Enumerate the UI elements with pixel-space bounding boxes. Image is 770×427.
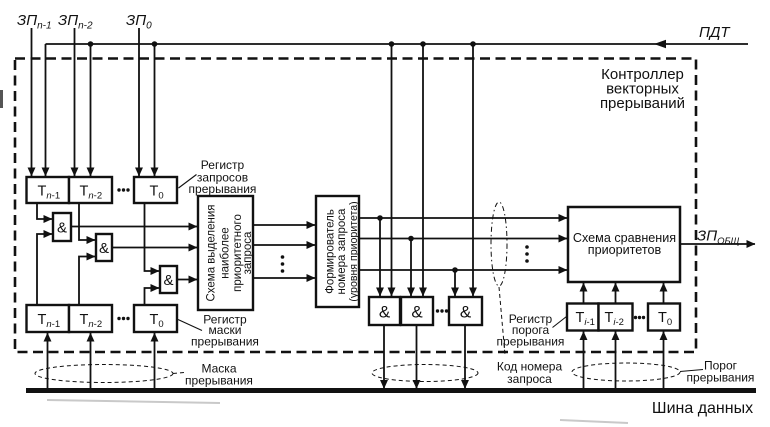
svg-text:запроса: запроса	[242, 231, 254, 274]
svg-text:Шина данных: Шина данных	[652, 400, 753, 417]
svg-text:Формирователь: Формирователь	[325, 209, 337, 294]
svg-text:&: &	[460, 303, 472, 322]
svg-text:запроса: запроса	[507, 372, 552, 386]
svg-text:прерываний: прерываний	[600, 95, 685, 112]
svg-text:(уровня приоритета): (уровня приоритета)	[348, 201, 360, 301]
svg-text:Схема выделения: Схема выделения	[206, 204, 218, 301]
svg-text:&: &	[411, 303, 423, 322]
svg-text:прерывания: прерывания	[687, 371, 755, 385]
svg-text:&: &	[57, 220, 67, 237]
svg-text:&: &	[163, 272, 173, 289]
svg-text:&: &	[379, 303, 391, 322]
svg-text:наиболее: наиболее	[220, 227, 232, 278]
svg-text:прерывания: прерывания	[185, 374, 253, 388]
svg-text:номера запроса: номера запроса	[336, 208, 348, 294]
svg-text:прерывания: прерывания	[189, 182, 257, 196]
svg-text:ПДТ: ПДТ	[699, 24, 731, 41]
svg-text:прерывания: прерывания	[497, 334, 565, 348]
svg-text:приоритетов: приоритетов	[588, 243, 662, 257]
svg-text:прерывания: прерывания	[191, 335, 259, 349]
svg-text:&: &	[99, 240, 109, 257]
